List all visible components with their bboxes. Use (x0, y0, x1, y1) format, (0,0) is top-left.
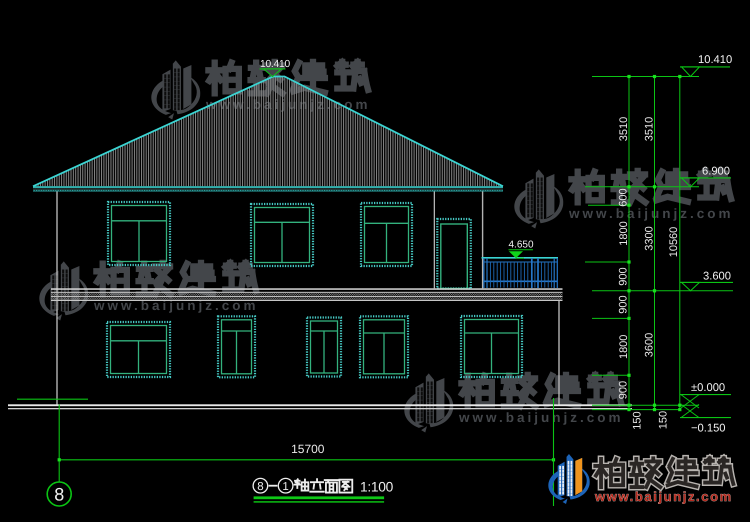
svg-text:3510: 3510 (644, 117, 656, 141)
svg-text:3.600: 3.600 (703, 271, 731, 283)
svg-text:www.baijunjz.com: www.baijunjz.com (594, 489, 733, 504)
svg-text:−0.150: −0.150 (691, 423, 726, 435)
svg-text:900: 900 (618, 381, 630, 399)
svg-text:8: 8 (257, 481, 263, 493)
svg-text:10560: 10560 (668, 227, 680, 258)
svg-text:10.410: 10.410 (698, 54, 732, 66)
svg-text:8: 8 (54, 485, 64, 505)
svg-text:150: 150 (632, 411, 644, 429)
svg-text:4.650: 4.650 (509, 240, 534, 251)
svg-text:1800: 1800 (618, 221, 630, 245)
svg-text:3300: 3300 (644, 226, 656, 250)
svg-text:900: 900 (618, 295, 630, 313)
svg-text:3510: 3510 (618, 117, 630, 141)
svg-text:1:100: 1:100 (360, 480, 394, 495)
svg-text:600: 600 (618, 188, 630, 206)
svg-text:150: 150 (658, 411, 670, 429)
svg-text:6.900: 6.900 (702, 166, 730, 178)
svg-text:1800: 1800 (618, 335, 630, 359)
svg-text:1: 1 (282, 481, 288, 493)
svg-text:15700: 15700 (291, 442, 325, 456)
svg-text:900: 900 (618, 267, 630, 285)
svg-text:3600: 3600 (644, 333, 656, 357)
svg-text:±0.000: ±0.000 (691, 382, 725, 394)
